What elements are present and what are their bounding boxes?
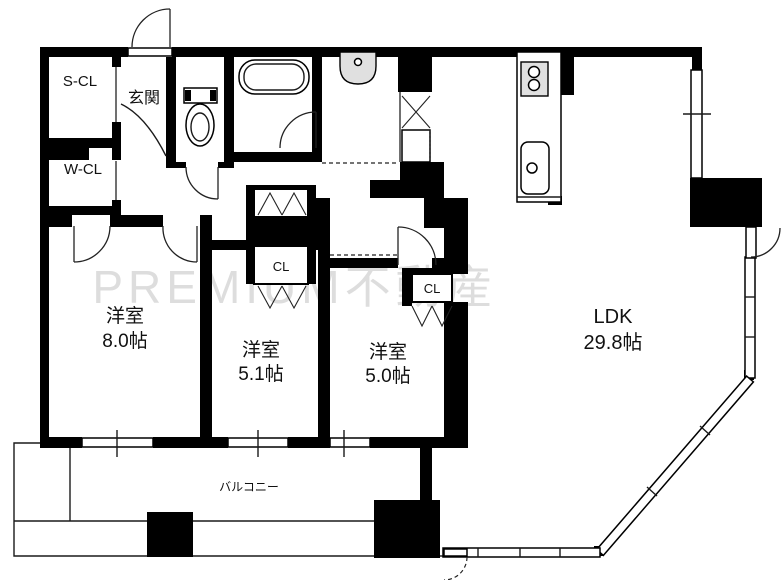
pillar-right (690, 178, 762, 227)
washbasin (340, 52, 376, 84)
label-bedroom8-size: 8.0帖 (102, 330, 147, 352)
label-shoes-closet: S-CL (63, 73, 97, 90)
toilet (184, 88, 217, 146)
window-right-upper (691, 70, 702, 178)
label-bedroom50-size: 5.0帖 (365, 365, 410, 387)
label-walkin-closet: W-CL (64, 161, 102, 178)
hall-storage (402, 130, 430, 162)
label-entrance: 玄関 (128, 89, 160, 107)
bedroom50-door (398, 227, 436, 265)
ldk-balcony-door (444, 549, 467, 580)
bedroom51-door (163, 226, 197, 262)
fixtures (184, 52, 561, 202)
entrance-threshold (128, 48, 172, 56)
label-bedroom51-name: 洋室 (242, 339, 280, 361)
floor-plan-drawing: PREMIUM不動産 (0, 0, 781, 580)
label-closet-50: CL (424, 281, 441, 296)
right-service-door (746, 227, 780, 258)
toilet-door (186, 167, 218, 199)
label-balcony: バルコニー (219, 480, 279, 494)
pillar-balcony-left (147, 512, 193, 557)
window-right-lower (745, 257, 755, 378)
kitchen-counter (517, 52, 561, 202)
label-bedroom51-size: 5.1帖 (238, 363, 283, 385)
bath-door (280, 112, 316, 148)
window-diagonal (597, 376, 754, 555)
entrance-door (132, 9, 170, 47)
label-closet-51: CL (273, 259, 290, 274)
window-bedroom50 (330, 438, 370, 447)
pillar-balcony-right (374, 500, 440, 558)
genkan-step (121, 104, 166, 156)
label-ldk-size: 29.8帖 (584, 331, 643, 354)
label-bedroom50-name: 洋室 (369, 341, 407, 363)
label-ldk-name: LDK (594, 306, 634, 328)
floor-plan: PREMIUM不動産 (0, 0, 781, 580)
bedroom8-door (72, 217, 110, 262)
label-bedroom8-name: 洋室 (106, 305, 144, 327)
